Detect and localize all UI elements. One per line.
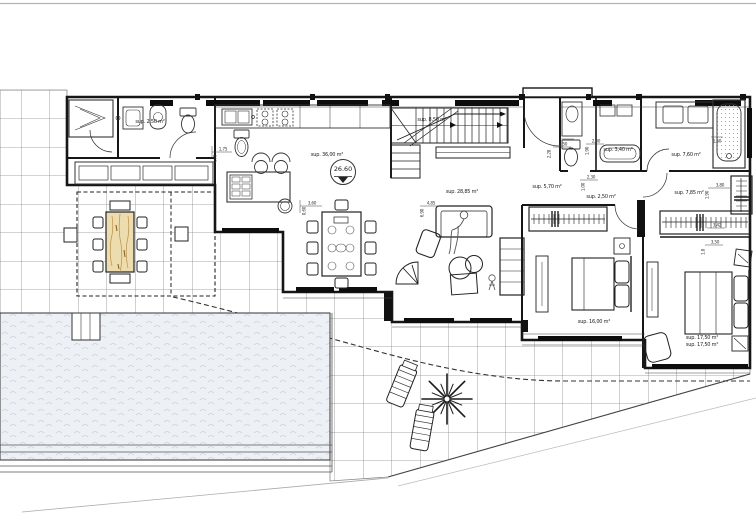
bench	[110, 274, 130, 283]
level-marker	[331, 160, 356, 185]
pergola-post	[64, 228, 77, 242]
pool-water	[0, 313, 330, 460]
swimming-pool	[0, 313, 332, 472]
floor-plan-sheet: 26.60 sup. 2,50 m²sup. 36,00 m²sup. 8,50…	[0, 0, 756, 528]
floor-plan-drawing	[0, 0, 756, 528]
pool-steps	[72, 313, 100, 340]
bench	[110, 201, 130, 210]
roof-projection	[523, 88, 592, 97]
pergola-post	[175, 227, 188, 241]
wood-tabletop	[106, 212, 134, 272]
